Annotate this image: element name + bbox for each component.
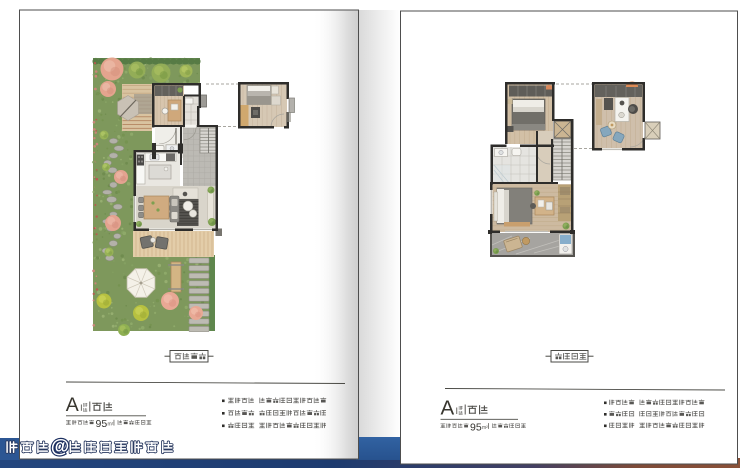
svg-text:A: A: [441, 397, 455, 420]
svg-text:A: A: [66, 394, 79, 416]
svg-text:@: @: [51, 437, 70, 458]
svg-text:m²: m²: [108, 422, 114, 428]
svg-text:95: 95: [470, 421, 482, 433]
svg-text:m²: m²: [482, 425, 488, 431]
svg-text:95: 95: [96, 418, 108, 430]
